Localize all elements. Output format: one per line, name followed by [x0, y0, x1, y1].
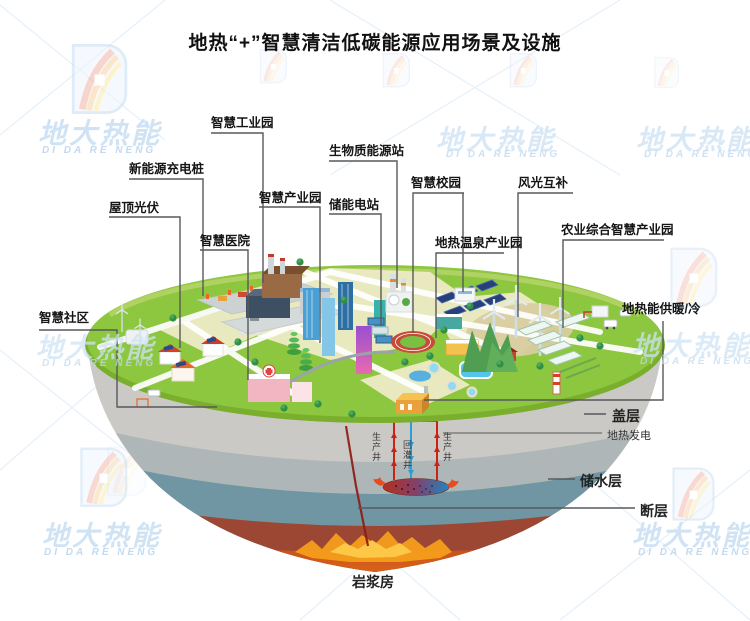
label-industry-park: 智慧产业园 — [259, 192, 322, 206]
label-reinjection-well: 回灌井 — [402, 440, 411, 470]
geothermal-reservoir — [383, 479, 449, 496]
watermark-brand-pinyin: DI DA RE NENG — [644, 149, 750, 160]
label-storage-station: 储能电站 — [329, 199, 379, 213]
label-geothermal-power: 地热发电 — [607, 427, 651, 443]
watermark-brand-pinyin: DI DA RE NENG — [42, 145, 156, 156]
label-production-well-left: 生产井 — [371, 432, 380, 462]
label-campus: 智慧校园 — [411, 177, 461, 191]
page-title: 地热“+”智慧清洁低碳能源应用场景及设施 — [0, 28, 750, 55]
watermark-brand-pinyin: DI DA RE NENG — [640, 356, 750, 367]
watermark-logo-mid-right — [672, 249, 717, 306]
watermark-brand-pinyin: DI DA RE NENG — [44, 547, 158, 558]
label-biomass-station: 生物质能源站 — [329, 145, 404, 159]
label-industrial-park: 智慧工业园 — [211, 117, 274, 131]
label-hot-spring-park: 地热温泉产业园 — [435, 237, 523, 251]
label-agriculture-park: 农业综合智慧产业园 — [561, 224, 674, 238]
label-production-well-right: 生产井 — [442, 432, 451, 462]
label-cap-layer: 盖层 — [612, 406, 640, 426]
watermark-logo-bottom-right — [674, 469, 714, 520]
label-aquifer: 储水层 — [580, 471, 622, 491]
label-heating-cooling: 地热能供暖/冷 — [622, 303, 700, 317]
label-rooftop-pv: 屋顶光伏 — [109, 202, 159, 216]
watermark-logo-top-left — [73, 45, 126, 112]
label-hospital: 智慧医院 — [200, 235, 250, 249]
van — [148, 390, 160, 396]
watermark-brand-pinyin: DI DA RE NENG — [42, 358, 156, 369]
watermark-brand-pinyin: DI DA RE NENG — [638, 547, 750, 558]
watermark-brand-pinyin: DI DA RE NENG — [446, 149, 560, 160]
label-community: 智慧社区 — [39, 312, 89, 326]
charging-pile — [206, 294, 209, 299]
infographic-geothermal-scenarios: . — [0, 0, 750, 621]
label-magma-chamber: 岩浆房 — [352, 572, 394, 592]
line-industrial-park — [211, 133, 263, 283]
surface-city — [85, 254, 665, 423]
label-ev-charging: 新能源充电桩 — [129, 163, 204, 177]
line-ev-charging — [129, 179, 203, 296]
label-wind-solar: 风光互补 — [518, 177, 568, 191]
